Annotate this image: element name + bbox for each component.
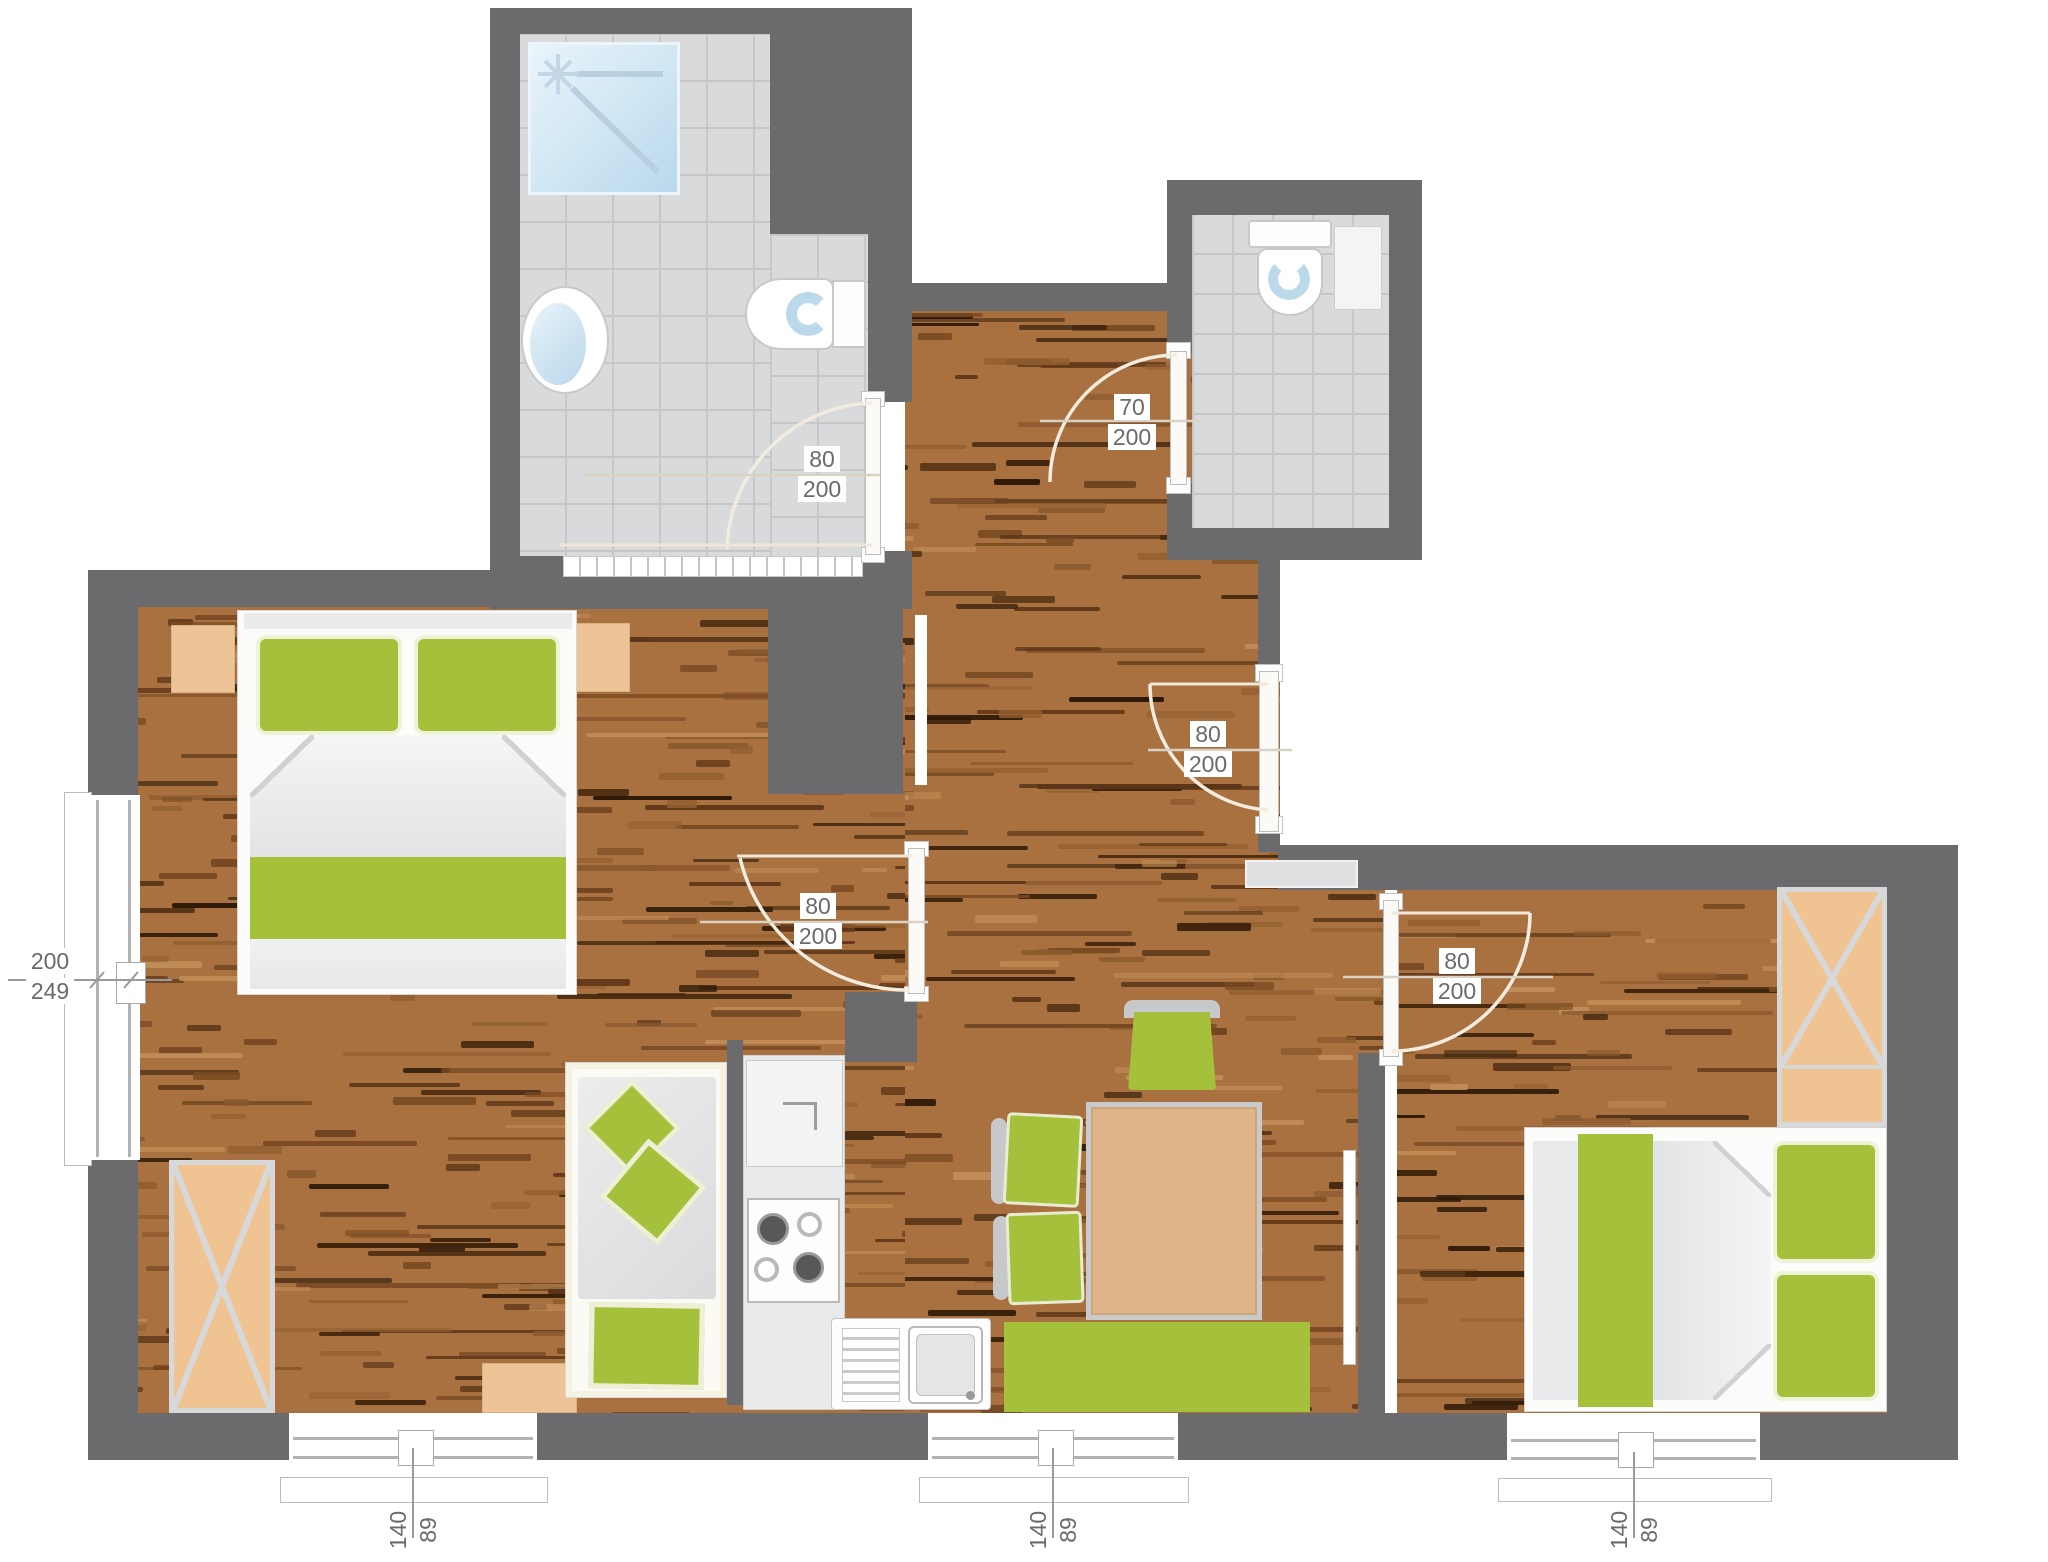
wall bbox=[88, 570, 512, 607]
chair-seat bbox=[1128, 1012, 1216, 1090]
window-sash-box bbox=[398, 1430, 434, 1466]
pillow bbox=[1773, 1141, 1879, 1263]
label-window-left: 200 249 bbox=[18, 948, 82, 1004]
pillow bbox=[256, 635, 402, 735]
wc-toilet-tank bbox=[1248, 220, 1332, 248]
bed-foot bbox=[250, 939, 566, 989]
bathroom-door bbox=[865, 398, 881, 555]
window-sash-box bbox=[1618, 1432, 1654, 1468]
stove-burner bbox=[754, 1257, 779, 1282]
label-door-left-bedroom: 80 200 bbox=[786, 893, 850, 949]
wall bbox=[1167, 213, 1192, 353]
wall bbox=[490, 8, 520, 608]
wall bbox=[768, 604, 903, 794]
living-radiator bbox=[1343, 1150, 1356, 1365]
sheet-fold bbox=[502, 735, 566, 797]
window-sash-box bbox=[1038, 1430, 1074, 1466]
entry-door bbox=[1259, 671, 1279, 832]
label-value: 70 bbox=[1114, 394, 1150, 420]
wall bbox=[1167, 180, 1422, 215]
window-left-glazing bbox=[96, 800, 99, 1157]
label-value: 89 bbox=[1636, 1512, 1662, 1548]
stove bbox=[747, 1198, 840, 1303]
label-value: 80 bbox=[804, 446, 840, 472]
wc-cabinet bbox=[1334, 226, 1382, 310]
label-value: 200 bbox=[1184, 751, 1232, 777]
label-value: 200 bbox=[1433, 978, 1481, 1004]
label-door-wc: 70 200 bbox=[1098, 394, 1166, 450]
hall-sideboard bbox=[1245, 860, 1358, 888]
wardrobe-right bbox=[1777, 887, 1887, 1127]
shower-tray bbox=[528, 42, 680, 195]
label-value: 200 bbox=[1108, 424, 1156, 450]
label-window-bottom-left: 140 89 bbox=[385, 1498, 441, 1562]
double-bed bbox=[237, 610, 577, 995]
sheet-fold bbox=[1713, 1344, 1771, 1400]
stove-burner bbox=[793, 1252, 824, 1283]
label-value: 89 bbox=[415, 1512, 441, 1548]
label-door-right-bedroom: 80 200 bbox=[1425, 948, 1489, 1004]
wc-door bbox=[1170, 351, 1187, 485]
fridge-door-icon bbox=[814, 1102, 817, 1130]
bathroom-toilet-tank bbox=[832, 280, 866, 348]
fridge-door-icon bbox=[783, 1102, 817, 1105]
wall bbox=[845, 992, 917, 1062]
chair-seat bbox=[1005, 1211, 1084, 1306]
right-bedroom-door bbox=[1383, 900, 1399, 1057]
dining-table bbox=[1086, 1102, 1262, 1320]
wall bbox=[1278, 845, 1958, 890]
wall bbox=[868, 234, 912, 402]
wall bbox=[1358, 1413, 1507, 1460]
wall bbox=[905, 283, 1171, 311]
wardrobe-left bbox=[169, 1160, 275, 1413]
outside-notch bbox=[1280, 557, 1960, 847]
label-value: 80 bbox=[1190, 721, 1226, 747]
sink-basin-inner bbox=[916, 1334, 975, 1396]
floor-plan: 80 200 70 200 80 200 80 200 80 200 200 2… bbox=[0, 0, 2048, 1538]
chair-seat bbox=[1003, 1112, 1084, 1208]
hall-threshold-strip bbox=[915, 615, 927, 785]
wardrobe-x-brace bbox=[174, 1165, 270, 1408]
wall bbox=[1358, 1053, 1385, 1413]
bed-blanket bbox=[1578, 1134, 1653, 1407]
single-bed bbox=[1524, 1127, 1887, 1412]
label-value: 80 bbox=[800, 893, 836, 919]
label-door-entry: 80 200 bbox=[1176, 721, 1240, 777]
wall bbox=[88, 1413, 289, 1460]
wall bbox=[1760, 1413, 1958, 1460]
label-value: 80 bbox=[1439, 948, 1475, 974]
pillow bbox=[414, 635, 560, 735]
wardrobe-x-brace bbox=[1782, 892, 1882, 1065]
wall bbox=[88, 570, 138, 798]
label-value: 140 bbox=[1025, 1506, 1051, 1554]
sink-drainer bbox=[842, 1328, 900, 1402]
label-window-bottom-center: 140 89 bbox=[1025, 1498, 1081, 1562]
wall bbox=[770, 8, 912, 234]
stove-burner bbox=[797, 1212, 822, 1237]
green-rug bbox=[1004, 1322, 1310, 1412]
bed-foot-pad bbox=[1533, 1141, 1578, 1400]
sheet-fold bbox=[250, 735, 314, 797]
kitchen-sink-unit bbox=[831, 1318, 991, 1410]
daybed bbox=[565, 1062, 727, 1398]
double-bed-headboard bbox=[244, 613, 572, 629]
bathroom-sink-basin bbox=[530, 303, 586, 385]
cushion-square bbox=[588, 1302, 704, 1390]
dresser-small bbox=[482, 1363, 577, 1413]
wall bbox=[727, 1040, 743, 1405]
sheet-fold bbox=[1713, 1141, 1771, 1197]
bathroom-toilet-inner bbox=[786, 292, 830, 336]
label-value: 200 bbox=[794, 923, 842, 949]
wardrobe-divider bbox=[1782, 1065, 1882, 1069]
window-left-sash-box bbox=[116, 962, 146, 1004]
wall bbox=[1178, 1413, 1358, 1460]
wc-toilet-inner bbox=[1268, 258, 1310, 300]
bed-blanket bbox=[250, 857, 566, 939]
nightstand-left bbox=[171, 625, 235, 693]
pillow bbox=[1773, 1271, 1879, 1401]
wall bbox=[490, 8, 775, 34]
sink-drain bbox=[966, 1391, 975, 1400]
wall bbox=[1167, 528, 1422, 560]
label-window-bottom-right: 140 89 bbox=[1606, 1498, 1662, 1562]
label-value: 89 bbox=[1055, 1512, 1081, 1548]
label-value: 200 bbox=[798, 476, 846, 502]
bathroom-radiator bbox=[563, 556, 863, 577]
label-value: 200 bbox=[26, 948, 74, 974]
wall bbox=[1887, 845, 1958, 1460]
stove-burner bbox=[757, 1213, 789, 1245]
left-bedroom-door bbox=[908, 848, 925, 994]
label-value: 140 bbox=[1606, 1506, 1632, 1554]
wall bbox=[537, 1413, 928, 1460]
label-value: 249 bbox=[26, 978, 74, 1004]
wall bbox=[1258, 557, 1280, 675]
label-door-bathroom: 80 200 bbox=[790, 446, 854, 502]
wall bbox=[1389, 213, 1422, 560]
fridge bbox=[746, 1060, 843, 1167]
label-value: 140 bbox=[385, 1506, 411, 1554]
